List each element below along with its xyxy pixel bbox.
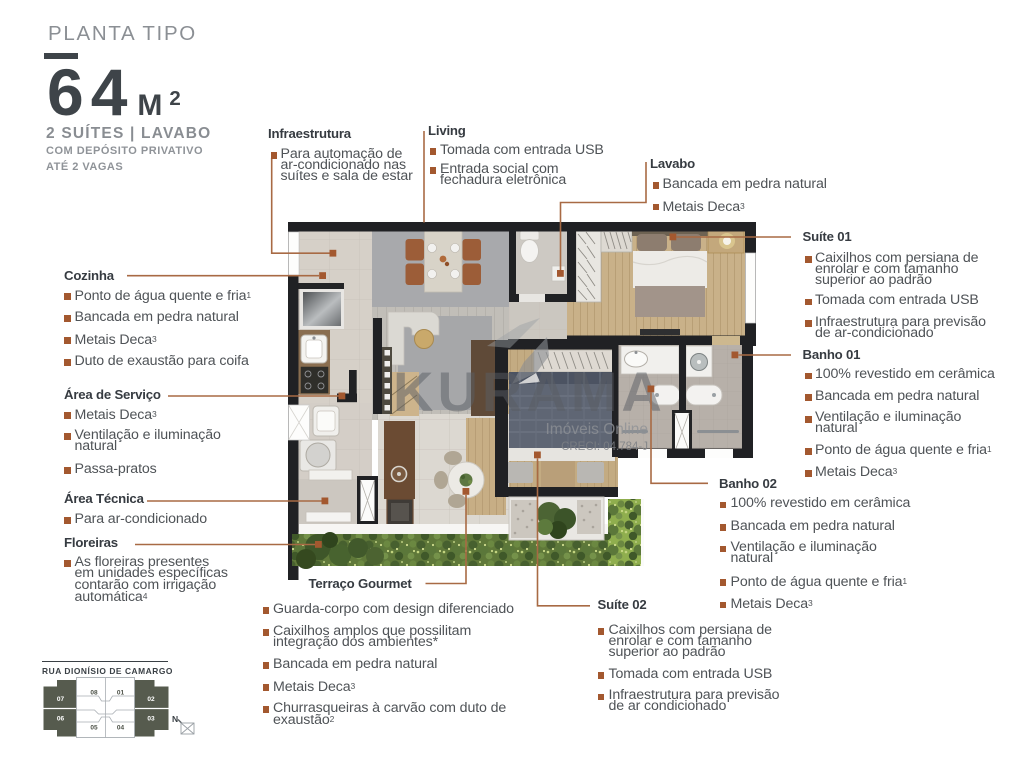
svg-text:KURAMA: KURAMA [393,360,666,423]
svg-text:CRECI: 04.784-J: CRECI: 04.784-J [561,441,648,453]
svg-text:01: 01 [117,690,125,697]
svg-text:08: 08 [90,690,98,697]
svg-text:04: 04 [117,725,125,732]
svg-text:Imóveis Online: Imóveis Online [545,421,648,438]
svg-text:06: 06 [57,716,65,723]
svg-text:07: 07 [57,696,65,703]
svg-text:02: 02 [147,696,155,703]
svg-text:N: N [172,714,178,724]
svg-text:05: 05 [90,725,98,732]
svg-text:03: 03 [147,716,155,723]
